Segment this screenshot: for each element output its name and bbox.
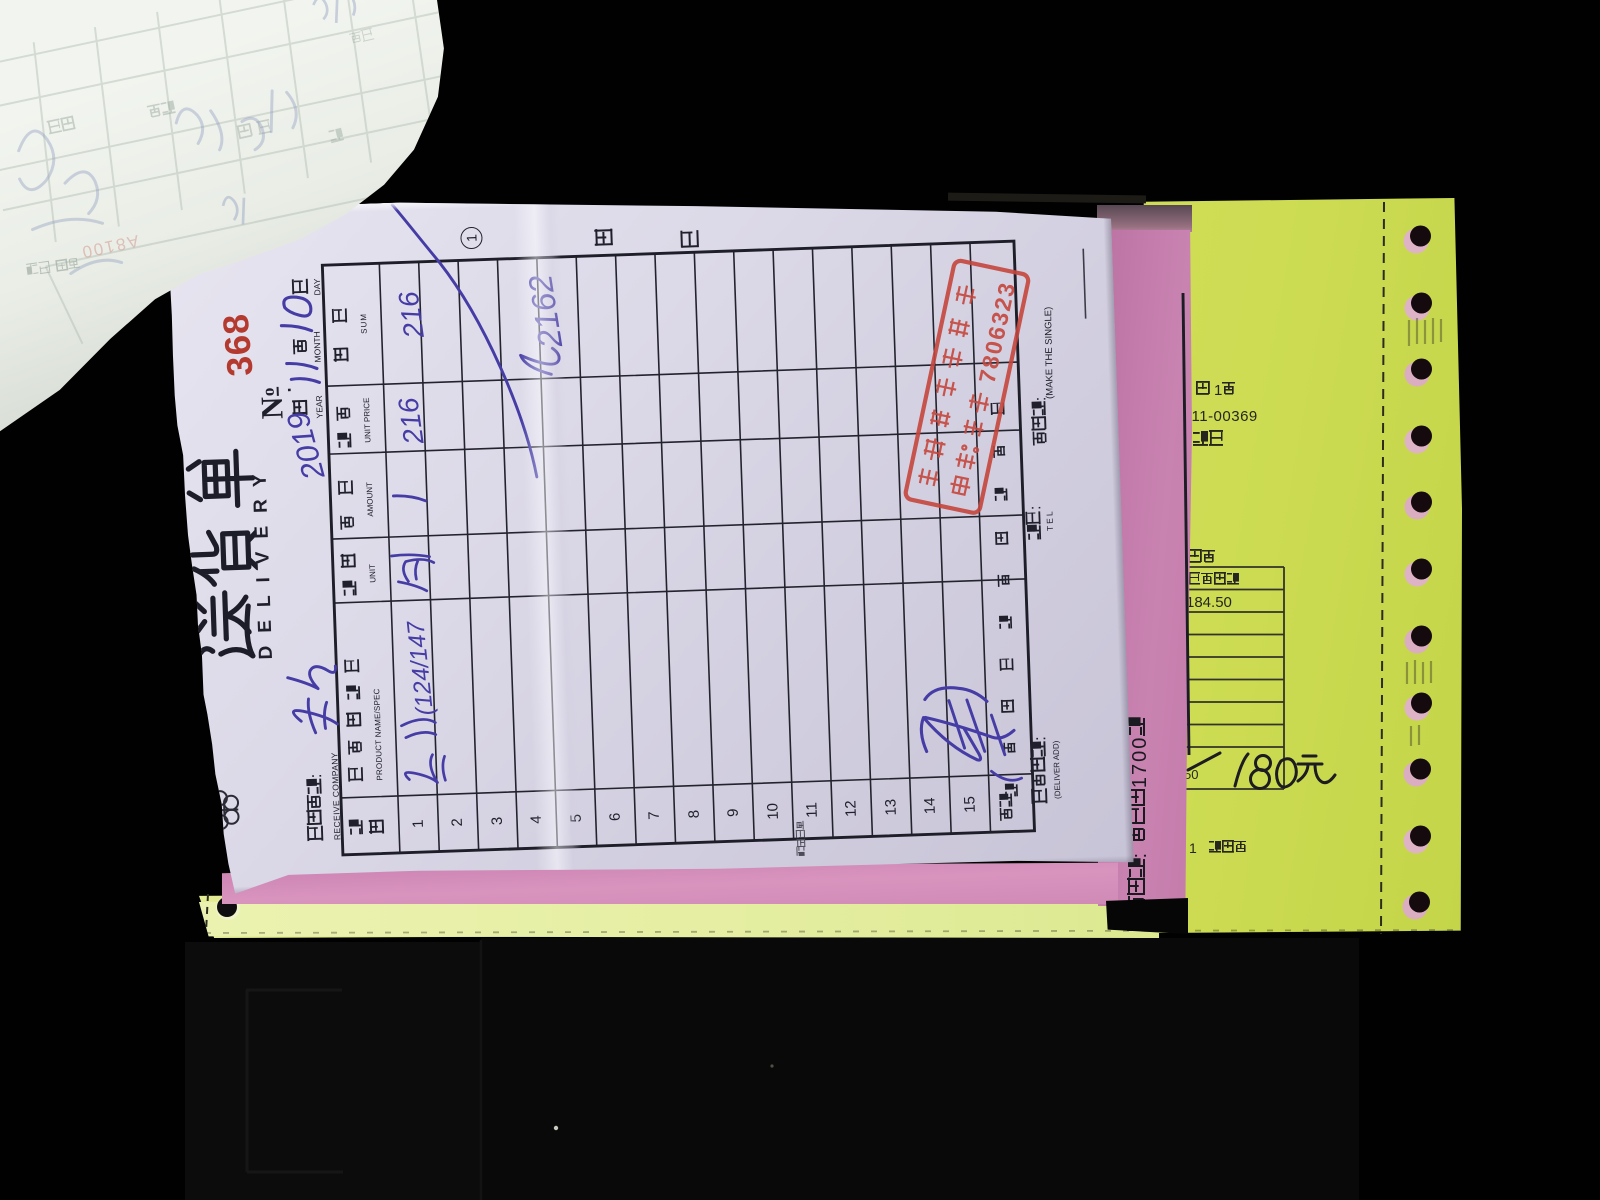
svg-text:(124/147: (124/147 [402, 618, 439, 717]
svg-text:7806323: 7806323 [974, 279, 1021, 386]
svg-text:2019: 2019 [280, 408, 332, 485]
svg-text:216: 216 [393, 289, 430, 341]
svg-text:216: 216 [392, 395, 429, 447]
